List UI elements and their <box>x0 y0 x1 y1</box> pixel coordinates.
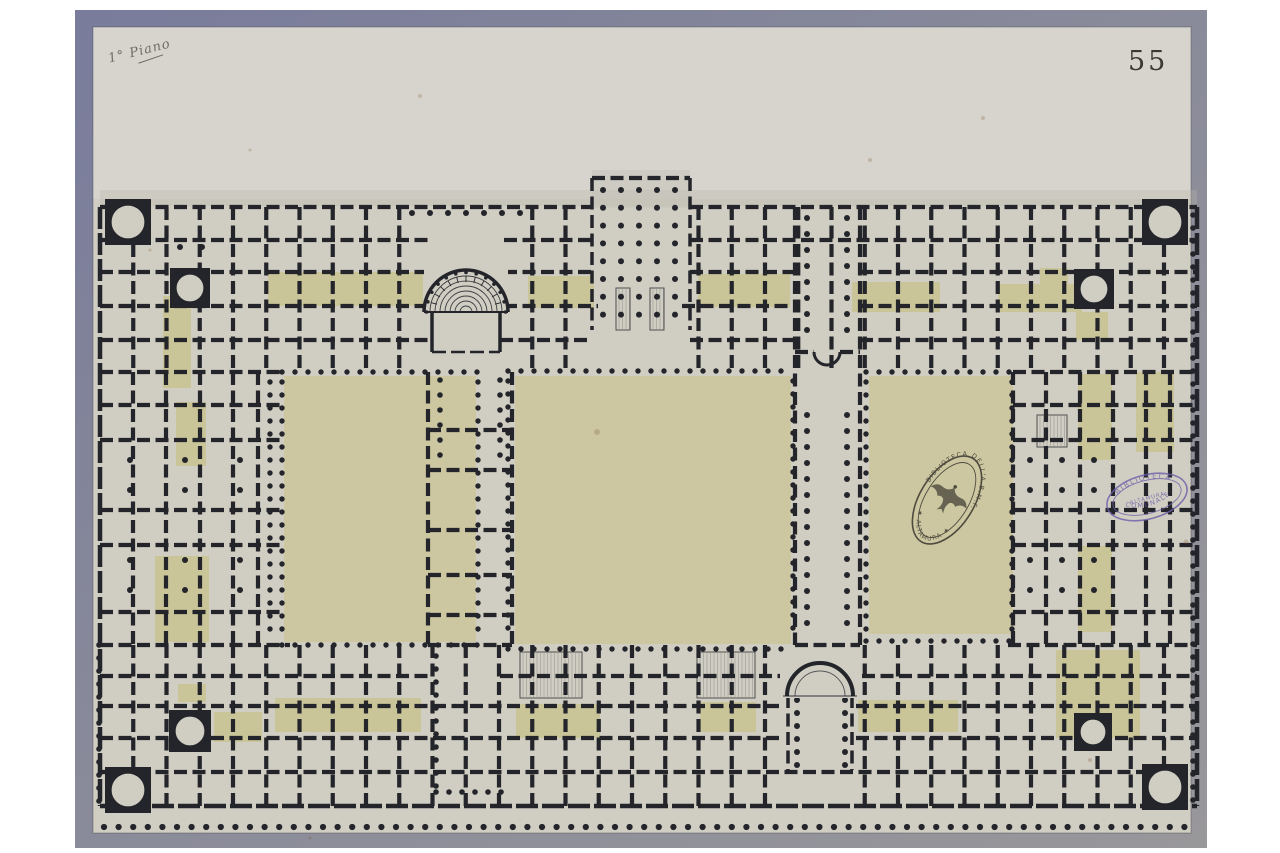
rotunda-room <box>1142 199 1188 245</box>
rotunda-room <box>170 268 210 308</box>
apse-hall <box>782 652 858 698</box>
tinted-hall <box>528 276 594 308</box>
tinted-hall <box>698 274 790 307</box>
rotunda-room <box>169 710 211 752</box>
tinted-hall <box>516 704 600 738</box>
tinted-hall <box>1078 374 1112 460</box>
page-number: 55 <box>1128 46 1168 77</box>
courtyard-left <box>284 376 476 642</box>
courtyard-central <box>515 376 791 644</box>
plate-canvas: BIBLIOTECA DELL'A.B.M.F. ★ ALTAMURA ★ BI… <box>0 0 1280 853</box>
rotunda-room <box>1074 269 1114 309</box>
scanned-plate: BIBLIOTECA DELL'A.B.M.F. ★ ALTAMURA ★ BI… <box>0 0 1280 853</box>
rotunda-room <box>1142 764 1188 810</box>
tinted-hall <box>1076 312 1108 340</box>
rotunda-room <box>1074 713 1112 751</box>
courtyard-right <box>869 376 1013 634</box>
rotunda-room <box>105 767 151 813</box>
courtyards-layer <box>284 376 1013 644</box>
rotunda-room <box>105 199 151 245</box>
